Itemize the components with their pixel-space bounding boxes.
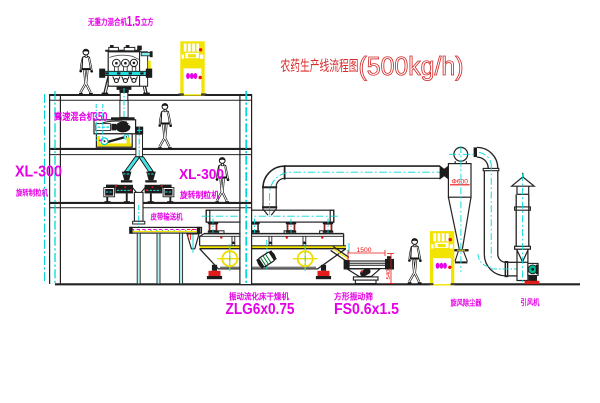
svg-text:FS0.6x1.5: FS0.6x1.5 [334,301,399,318]
svg-text:方形振动筛: 方形振动筛 [334,291,373,301]
svg-text:1.5: 1.5 [127,13,141,30]
svg-text:Φ600: Φ600 [452,179,469,185]
svg-text:振动流化床干燥机: 振动流化床干燥机 [229,291,289,301]
svg-text:引风机: 引风机 [521,297,540,307]
svg-text:高速混合机: 高速混合机 [54,111,95,123]
svg-text:无重力混合机: 无重力混合机 [87,16,127,27]
svg-text:皮带输送机: 皮带输送机 [150,212,183,222]
svg-text:旋风除尘器: 旋风除尘器 [450,297,483,307]
svg-text:350: 350 [93,109,108,124]
svg-text:540: 540 [386,270,392,280]
svg-text:1500: 1500 [357,248,373,254]
svg-text:ZLG6x0.75: ZLG6x0.75 [226,301,295,318]
svg-text:XL-300: XL-300 [179,166,224,183]
svg-text:农药生产线流程图: 农药生产线流程图 [281,58,359,75]
svg-text:立方: 立方 [141,16,154,27]
svg-text:旋转制粒机: 旋转制粒机 [179,190,219,200]
svg-text:XL-300: XL-300 [15,163,62,180]
svg-text:旋转制粒机: 旋转制粒机 [15,187,48,197]
svg-text:(500kg/h): (500kg/h) [359,53,464,81]
